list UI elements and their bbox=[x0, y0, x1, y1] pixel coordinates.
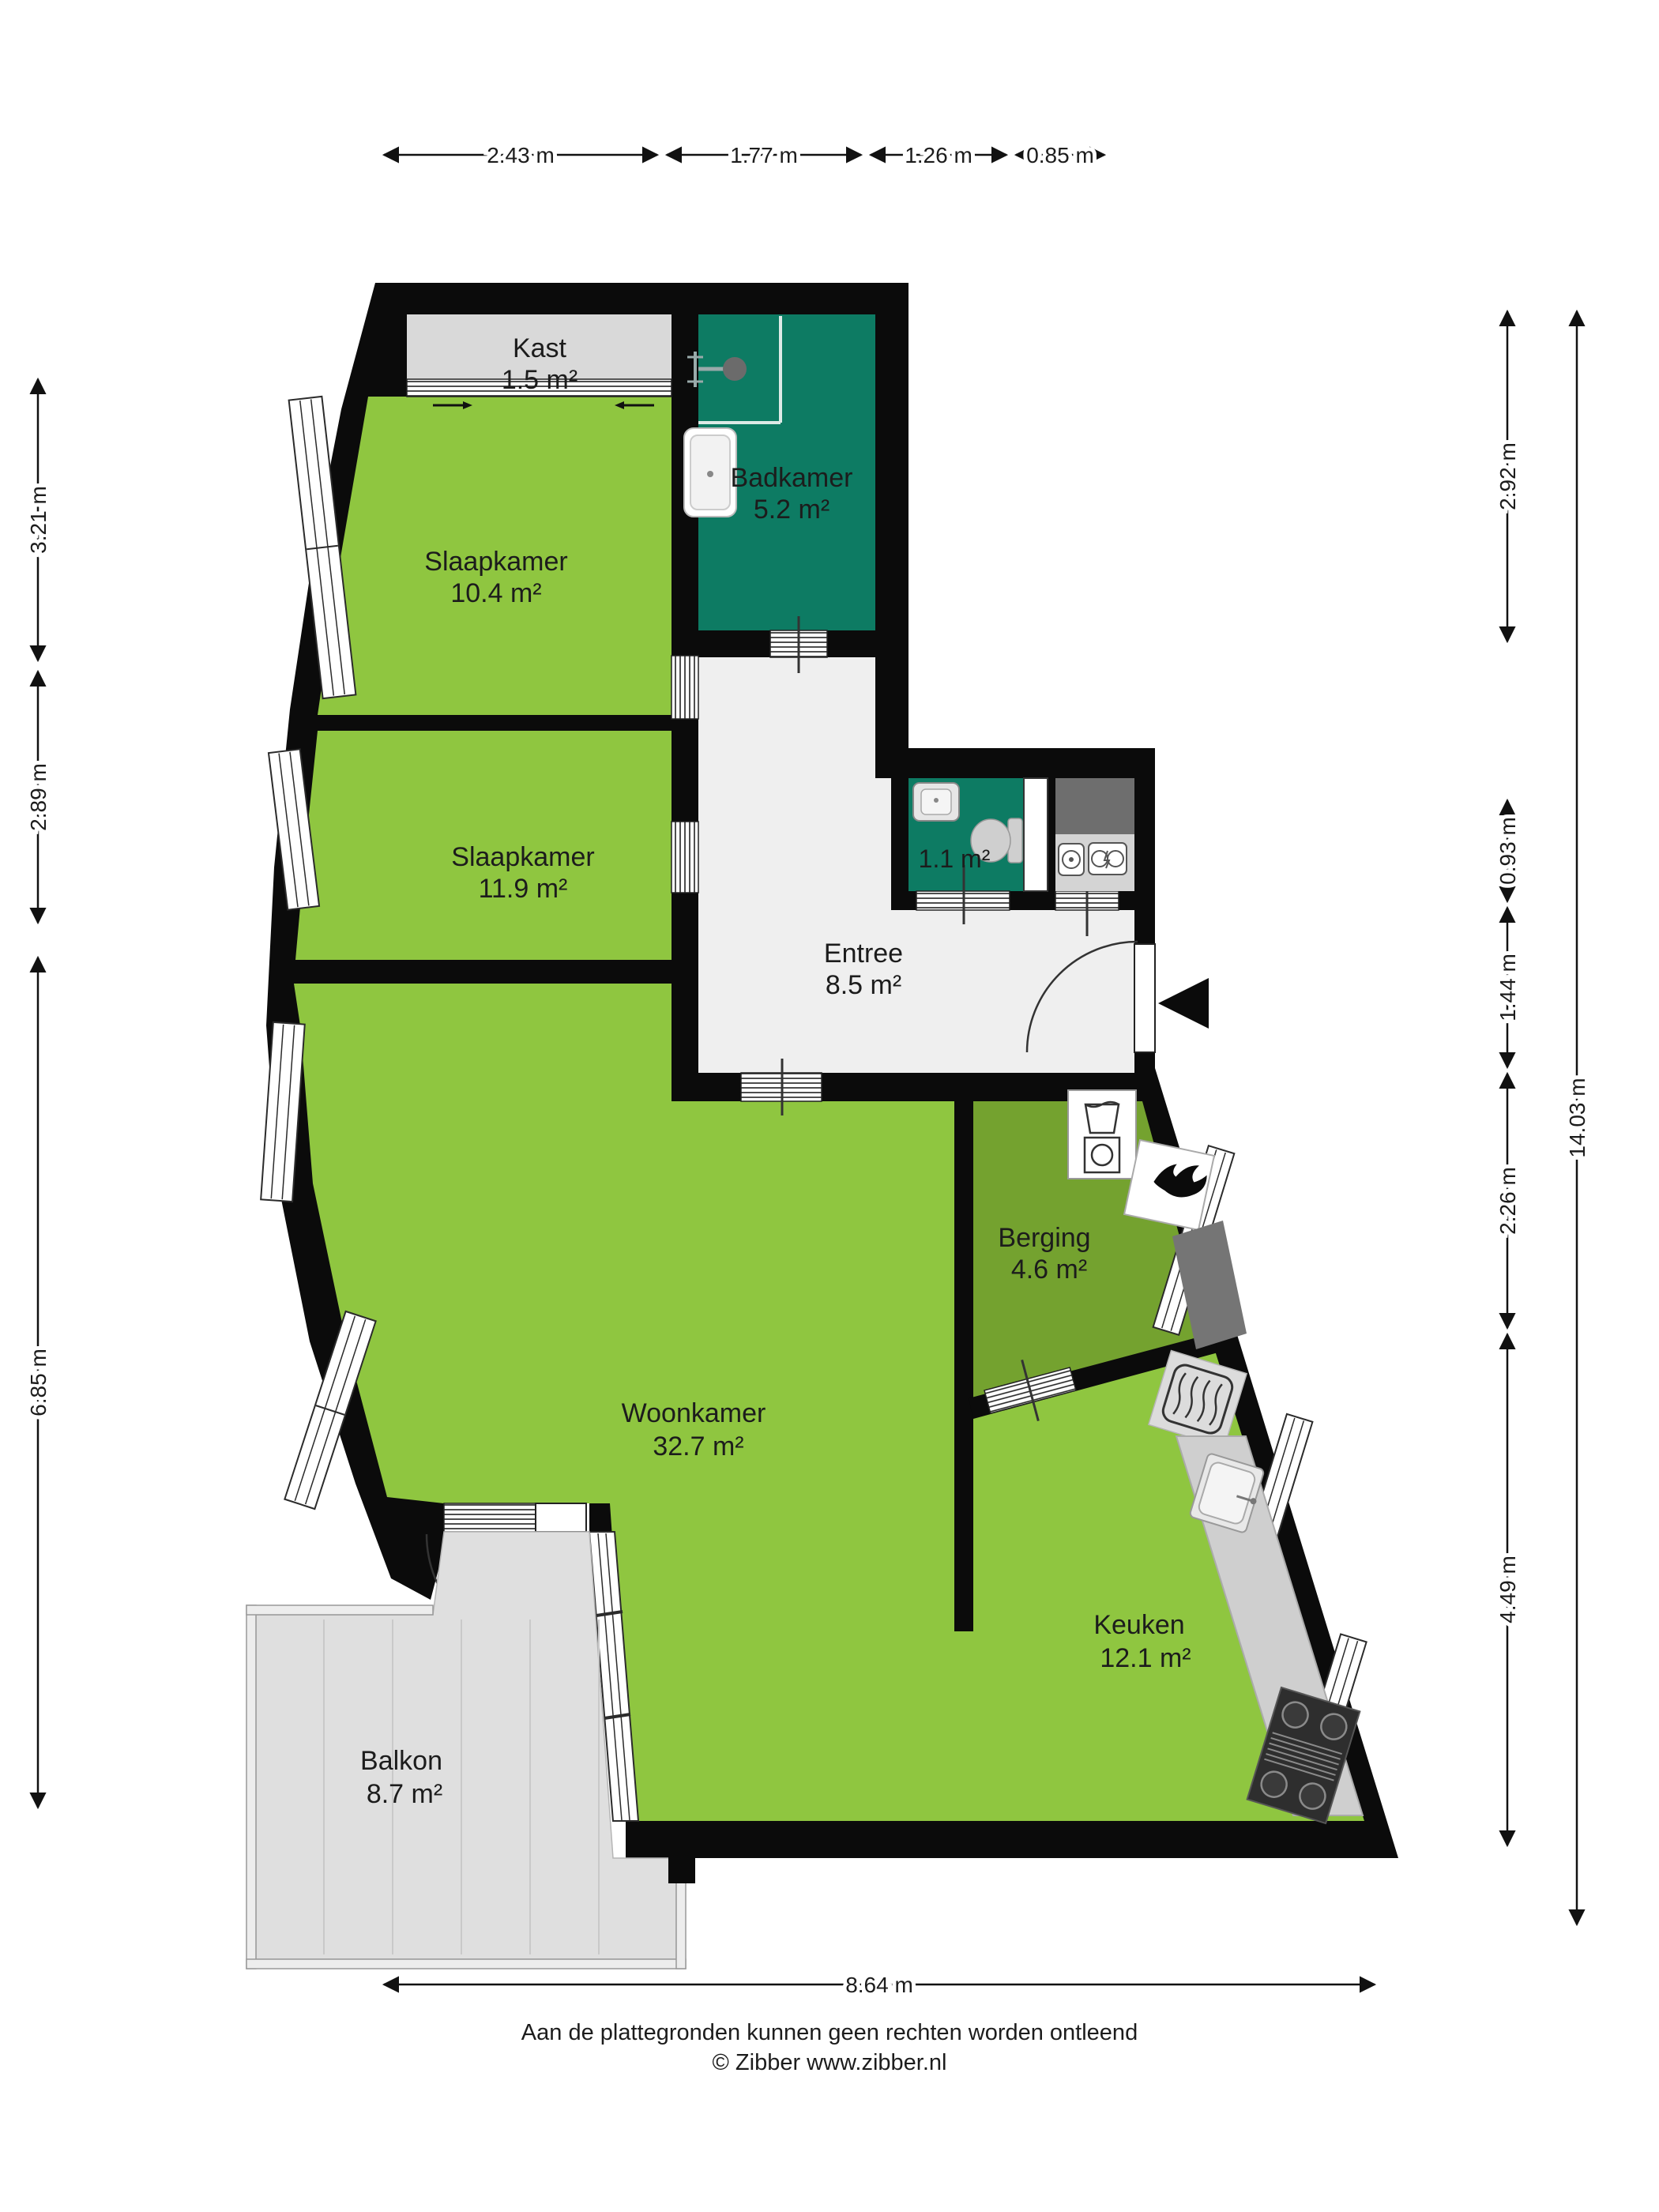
wall-bedroom2-woonkamer bbox=[294, 960, 671, 984]
hand-sink-icon bbox=[913, 783, 959, 821]
water-meter-icon bbox=[1059, 844, 1084, 875]
dimension-bottom: 8.64 m bbox=[384, 1973, 1375, 1997]
svg-text:6.85 m: 6.85 m bbox=[26, 1349, 51, 1416]
boiler-icon bbox=[1124, 1140, 1214, 1230]
toilet-area: 1.1 m² bbox=[919, 845, 991, 873]
wall-toilet-left bbox=[891, 778, 908, 891]
balkon-area: 8.7 m² bbox=[367, 1779, 442, 1809]
woonkamer-area: 32.7 m² bbox=[653, 1431, 743, 1461]
balcony-rail-bottom bbox=[246, 1959, 686, 1969]
svg-text:3.21 m: 3.21 m bbox=[26, 486, 51, 554]
svg-text:2.43 m: 2.43 m bbox=[487, 143, 555, 167]
badkamer-area: 5.2 m² bbox=[754, 495, 829, 525]
entrance-door bbox=[1134, 944, 1155, 1052]
slaapkamer2-label: Slaapkamer bbox=[451, 842, 594, 872]
footer-disclaimer: Aan de plattegronden kunnen geen rechten… bbox=[521, 2020, 1138, 2045]
electricity-meter-icon bbox=[1089, 843, 1127, 875]
floorplan-canvas: Kast 1.5 m² Badkamer 5.2 m² Slaapkamer 1… bbox=[0, 0, 1659, 2212]
dimension-top: 2.43 m 1.77 m 1.26 m 0.85 m bbox=[384, 143, 1104, 167]
svg-text:0.85 m: 0.85 m bbox=[1026, 143, 1094, 167]
svg-text:14.03 m: 14.03 m bbox=[1565, 1078, 1589, 1157]
svg-text:1.44 m: 1.44 m bbox=[1495, 954, 1520, 1021]
wall-bedroom-divider bbox=[314, 715, 671, 731]
entrance-arrow-icon bbox=[1158, 978, 1209, 1029]
floorplan-page: Kast 1.5 m² Badkamer 5.2 m² Slaapkamer 1… bbox=[0, 0, 1659, 2212]
dimension-right: 2.92 m 0.93 m 1.44 m 2.26 m 4.49 m bbox=[1495, 311, 1520, 1845]
meterkast-box bbox=[1055, 778, 1134, 834]
balcony-rail-left bbox=[246, 1605, 256, 1969]
toilet-pocket-door bbox=[1024, 778, 1048, 891]
balcony-rail-top bbox=[246, 1605, 433, 1615]
footer-copyright: © Zibber www.zibber.nl bbox=[713, 2050, 947, 2075]
svg-text:2.26 m: 2.26 m bbox=[1495, 1167, 1520, 1235]
entree-label: Entree bbox=[824, 939, 903, 969]
berging-label: Berging bbox=[998, 1223, 1090, 1253]
wall-toilet-section-top bbox=[875, 748, 1155, 778]
wall-bottom-left-cap bbox=[626, 1821, 673, 1858]
keuken-label: Keuken bbox=[1093, 1610, 1184, 1640]
woonkamer-label: Woonkamer bbox=[622, 1398, 766, 1428]
svg-text:2.92 m: 2.92 m bbox=[1495, 442, 1520, 510]
slaapkamer1-door bbox=[671, 656, 698, 719]
keuken-area: 12.1 m² bbox=[1100, 1643, 1191, 1673]
svg-text:1.26 m: 1.26 m bbox=[905, 143, 972, 167]
svg-text:2.89 m: 2.89 m bbox=[26, 763, 51, 831]
bathtub-icon bbox=[684, 428, 736, 517]
badkamer-label: Badkamer bbox=[731, 463, 853, 493]
berging-area: 4.6 m² bbox=[1011, 1255, 1087, 1285]
svg-text:8.64 m: 8.64 m bbox=[845, 1973, 913, 1997]
kast-label: Kast bbox=[513, 333, 567, 363]
slaapkamer1-label: Slaapkamer bbox=[424, 547, 567, 577]
slaapkamer2-area: 11.9 m² bbox=[479, 874, 568, 904]
kast-area: 1.5 m² bbox=[502, 365, 577, 395]
balkon-label: Balkon bbox=[360, 1746, 442, 1776]
entree-area: 8.5 m² bbox=[826, 970, 901, 1000]
balcony-window bbox=[444, 1503, 536, 1532]
wall-berging-left bbox=[954, 1101, 973, 1631]
slaapkamer1-area: 10.4 m² bbox=[450, 578, 541, 608]
washing-machine-icon bbox=[1068, 1090, 1136, 1179]
balcony-door bbox=[536, 1503, 586, 1532]
dimension-right-total: 14.03 m bbox=[1565, 311, 1589, 1924]
svg-text:0.93 m: 0.93 m bbox=[1495, 817, 1520, 885]
svg-text:1.77 m: 1.77 m bbox=[730, 143, 798, 167]
wall-balcony-corner-cap bbox=[668, 1849, 695, 1883]
svg-text:4.49 m: 4.49 m bbox=[1495, 1556, 1520, 1623]
dimension-left: 3.21 m 2.89 m 6.85 m bbox=[26, 379, 51, 1808]
slaapkamer2-door bbox=[671, 822, 698, 893]
